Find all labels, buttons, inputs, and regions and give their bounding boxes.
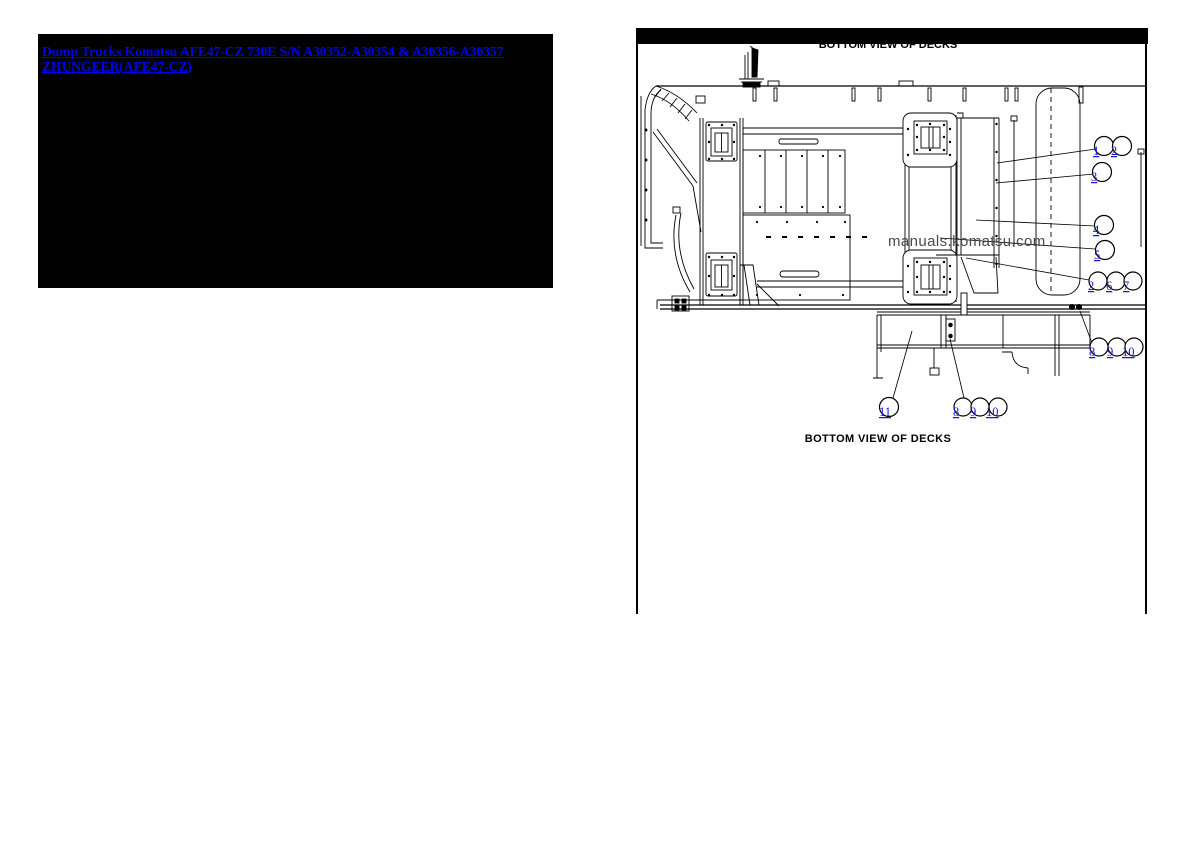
svg-text:7: 7 [1123, 279, 1129, 293]
diagram-caption: BOTTOM VIEW OF DECKS [805, 433, 952, 445]
callout-7[interactable]: 7 [1123, 272, 1142, 293]
svg-text:5: 5 [1094, 248, 1100, 262]
callout-2b[interactable]: 2 [1088, 272, 1107, 293]
svg-text:3: 3 [1091, 170, 1097, 184]
callout-8[interactable]: 8 [1089, 338, 1108, 359]
callout-11[interactable]: 11 [879, 398, 899, 420]
callout-2[interactable]: 2 [1111, 137, 1132, 159]
diagram-header-bar [636, 28, 1148, 44]
svg-text:10: 10 [1122, 345, 1135, 359]
callout-5[interactable]: 5 [1094, 241, 1115, 263]
left-front-structure [645, 86, 705, 311]
center-brackets [903, 113, 957, 304]
svg-text:9: 9 [1107, 345, 1113, 359]
svg-text:6: 6 [1106, 279, 1112, 293]
deck-diagram: BOTTOM VIEW OF DECKS [636, 28, 1148, 620]
top-pillar [739, 46, 764, 87]
panel-borders [637, 28, 1146, 614]
callout-10b[interactable]: 10 [986, 398, 1007, 419]
svg-text:8: 8 [953, 405, 959, 419]
watermark: manuals.komatsu.com [888, 233, 1046, 250]
svg-text:11: 11 [879, 405, 891, 419]
deck-outline [641, 86, 1146, 312]
svg-text:4: 4 [1093, 223, 1100, 237]
lower-frame [873, 315, 1090, 378]
svg-text:10: 10 [986, 405, 999, 419]
callout-3[interactable]: 3 [1091, 163, 1112, 185]
deck-panels [740, 128, 903, 306]
callout-10[interactable]: 10 [1122, 338, 1143, 359]
svg-text:1: 1 [1093, 144, 1099, 158]
callout-4[interactable]: 4 [1093, 216, 1114, 238]
svg-text:2: 2 [1088, 279, 1094, 293]
svg-text:9: 9 [970, 405, 976, 419]
diagram-panel: BOTTOM VIEW OF DECKS [636, 28, 1148, 620]
catalog-header-panel: Dump Trucks Komatsu AFE47-CZ 730E S/N A3… [38, 34, 553, 288]
svg-text:2: 2 [1111, 144, 1117, 158]
top-edge-tabs [753, 81, 1083, 103]
mount-plates [700, 118, 743, 305]
model-link[interactable]: Dump Trucks Komatsu AFE47-CZ 730E S/N A3… [42, 45, 548, 75]
svg-text:8: 8 [1089, 345, 1095, 359]
